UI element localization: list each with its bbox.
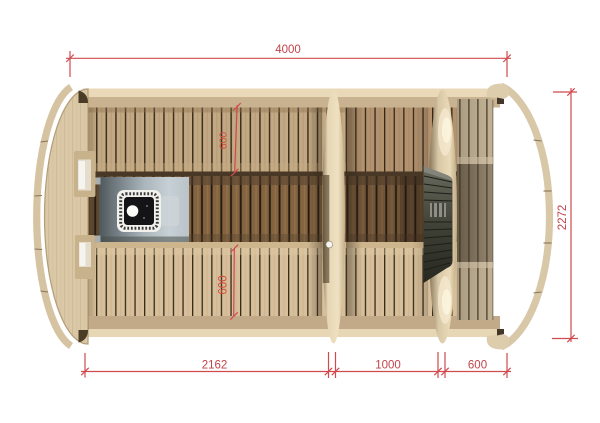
svg-text:4000: 4000: [275, 44, 301, 56]
svg-text:600: 600: [218, 132, 230, 150]
svg-text:600: 600: [468, 360, 487, 372]
svg-text:2272: 2272: [557, 205, 569, 231]
svg-text:2162: 2162: [202, 360, 228, 372]
svg-text:600: 600: [218, 275, 230, 294]
svg-text:1000: 1000: [375, 360, 401, 372]
